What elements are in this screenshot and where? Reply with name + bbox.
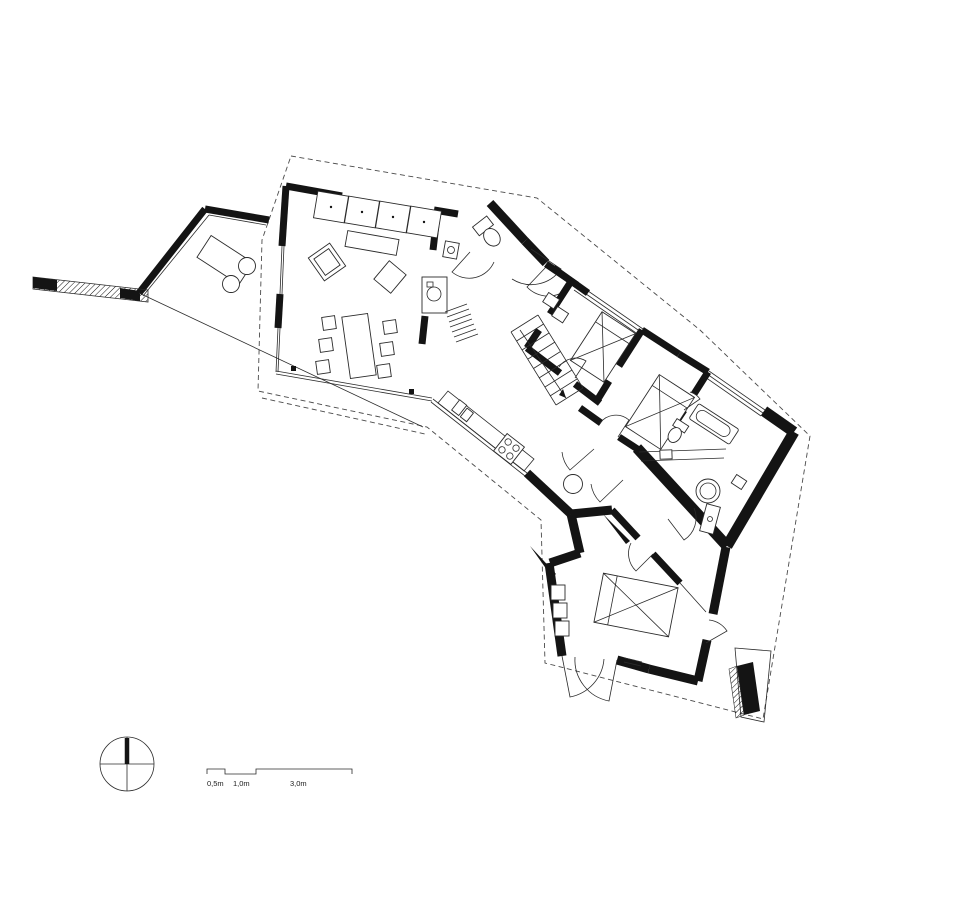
chair-symbol [383,320,398,335]
door-swing-symbol [452,252,494,278]
chair-symbol [377,364,392,379]
scale-bar: 0,5m 1,0m 3,0m [207,769,352,788]
window-glass [276,328,280,372]
chair-symbol [380,342,395,357]
stair-direction-arrow [559,389,566,398]
washing-machine-symbol [422,277,447,313]
sofa-symbol [314,191,442,238]
sink-symbol [452,400,475,422]
window-glass [280,246,284,294]
armchair-symbol [308,243,345,281]
floor-plan-sheet: 0,5m 1,0m 3,0m [0,0,960,900]
kitchen [431,391,594,514]
wardrobe-symbol [553,603,567,618]
door-swing-symbol [562,449,594,470]
kitchen-counter-symbol [438,391,534,471]
door-swing-symbol [591,480,623,502]
sink-symbol [660,450,672,459]
living-room-furniture [308,191,441,378]
toilet-symbol [731,475,747,490]
washbasin-symbol [443,241,460,259]
outdoor-stool-symbol [223,276,240,293]
cooktop-symbol [494,434,525,465]
floor-plan-drawing: 0,5m 1,0m 3,0m [0,0,960,900]
scale-label: 3,0m [290,779,307,788]
entry-path-hatch [33,277,148,302]
door-swing-symbol [706,620,727,643]
garden-wall-fragment [729,648,771,722]
door-swing-symbol [562,656,604,697]
armchair-symbol [374,261,406,294]
wardrobe-symbol [555,621,569,636]
side-table-symbol [564,475,583,494]
outdoor-stool-symbol [239,258,256,275]
bed-symbol [570,312,635,382]
scale-label: 1,0m [233,779,250,788]
coffee-table-symbol [345,231,399,256]
bed-symbol [594,573,678,637]
toilet-symbol [473,216,505,250]
stairs-symbol [445,304,478,342]
chair-symbol [316,360,331,375]
north-arrow-compass-icon [100,737,154,791]
chair-symbol [322,316,337,331]
door-swing-symbol [575,657,617,701]
door-swing-symbol [600,415,629,437]
wardrobe-symbol [551,585,565,600]
dining-table-symbol [316,313,398,378]
entry-core [422,203,571,342]
bedroom-3 [594,543,678,637]
scale-label: 0,5m [207,779,224,788]
window-glass [705,371,765,416]
bed-symbol [626,375,695,450]
door-swing-symbol [629,543,653,571]
chair-symbol [319,338,334,353]
outdoor-table-symbol [197,235,256,292]
bathtub-symbol [689,403,739,444]
